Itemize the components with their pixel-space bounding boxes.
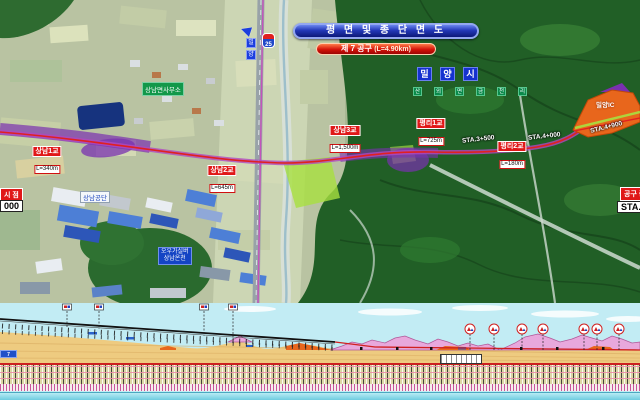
direction-label: 밀 양 xyxy=(246,38,256,60)
end-point-label: 공구 종점 xyxy=(620,187,640,201)
title-banner: 평 면 및 종 단 면 도 xyxy=(293,23,479,39)
profile-data-table xyxy=(0,363,640,384)
industrial-complex-label: 상남공단 xyxy=(80,191,110,203)
section-length: (L=4.90km) xyxy=(374,46,411,53)
profile-section: 7 xyxy=(0,303,640,400)
profile-data-row-magenta xyxy=(0,384,640,391)
clouds xyxy=(224,305,640,322)
city-label-miryang: 밀 양 시 xyxy=(417,67,478,81)
route-shield-icon: 25 xyxy=(262,33,275,48)
profile-section-tag: 7 xyxy=(0,350,17,358)
resort-label: 오우가실버 상남온천 xyxy=(158,247,192,265)
bridge-label-2: 상남2교 L=645m xyxy=(207,165,236,194)
township-office-label: 상남면사무소 xyxy=(142,82,184,96)
section-banner: 제 7 공구 (L=4.90km) xyxy=(316,43,436,55)
profile-bottom-band xyxy=(0,392,640,400)
plan-profile-drawing: 평 면 및 종 단 면 도 제 7 공구 (L=4.90km) 밀 양 시 산 … xyxy=(0,0,640,400)
bridge-label-5: 평리2교 L=180m xyxy=(497,141,526,170)
bridge-label-4: 평리1교 L=725m xyxy=(416,118,445,147)
section-name: 제 7 공구 xyxy=(341,44,372,53)
interchange-label: 밀양IC xyxy=(596,99,614,109)
village-label: 산 외 면 금 천 리 xyxy=(413,87,527,96)
bridge-label-1: 상남1교 L=340m xyxy=(32,146,61,175)
end-station-label: STA.4+900 xyxy=(617,201,640,213)
profile-legend xyxy=(440,354,482,364)
start-station-label: 000 xyxy=(0,200,23,212)
bridge-label-3: 상남3교 L=1,500m xyxy=(330,125,361,154)
reservoir xyxy=(77,102,125,131)
